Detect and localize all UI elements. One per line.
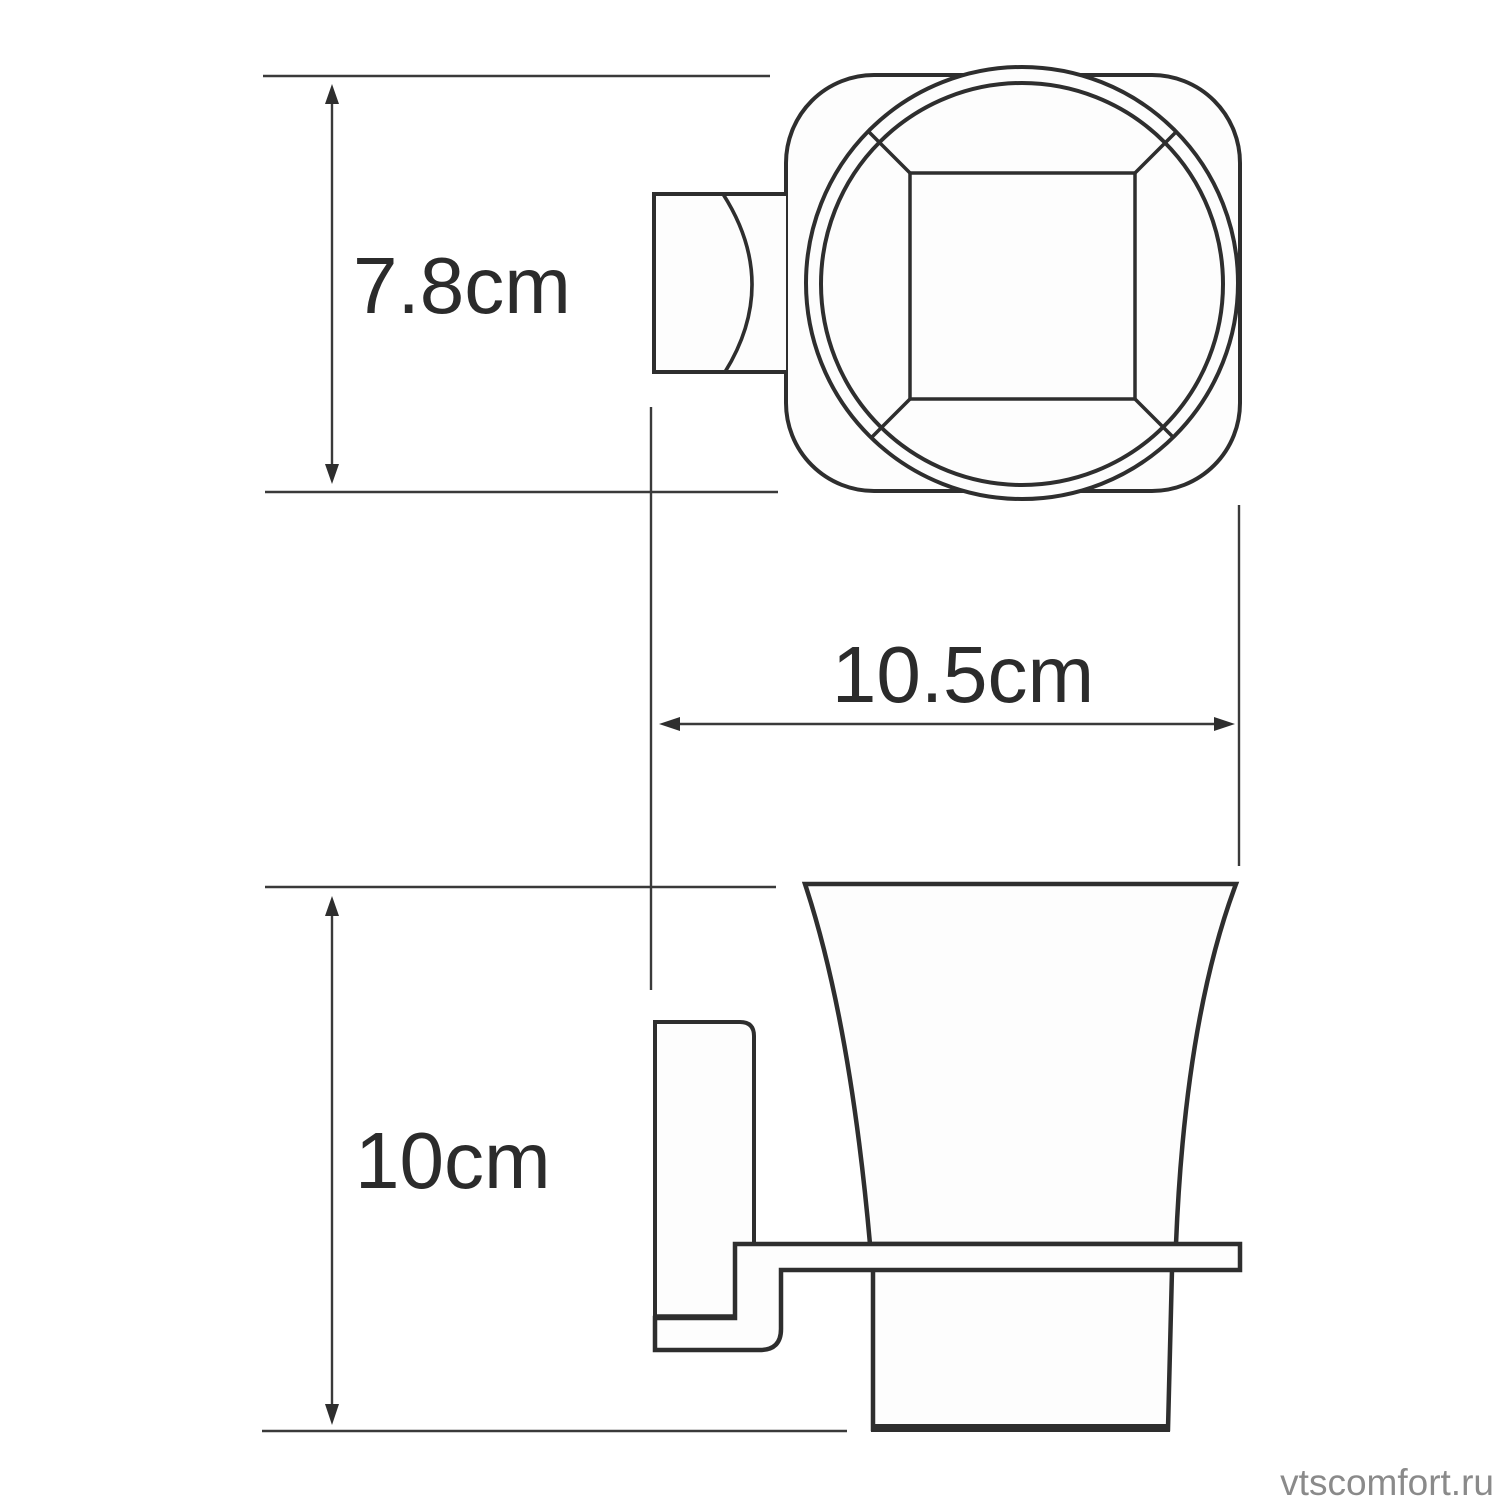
cup-body-outline [805, 884, 1236, 1244]
side-view [655, 884, 1240, 1429]
drawing-page: 7.8cm 10.5cm 10cm vtscomfort.ru [0, 0, 1503, 1504]
arrow-up-icon [325, 84, 339, 104]
tumbler-holder-technical-drawing: 7.8cm 10.5cm 10cm vtscomfort.ru [0, 0, 1503, 1504]
cup-base-outline [873, 1270, 1172, 1429]
dimension-label-10cm: 10cm [355, 1116, 551, 1205]
arrow-down-icon [325, 1404, 339, 1425]
top-view [654, 67, 1240, 499]
dimension-label-10-5cm: 10.5cm [832, 630, 1094, 719]
wall-bracket-outline [654, 194, 786, 372]
arrow-up-icon [325, 896, 339, 916]
arrow-right-icon [1214, 717, 1235, 731]
arrow-left-icon [659, 717, 680, 731]
arrow-down-icon [325, 464, 339, 484]
cup-bottom-square [910, 173, 1135, 399]
watermark: vtscomfort.ru [1280, 1462, 1494, 1503]
dimension-label-7-8cm: 7.8cm [353, 241, 571, 330]
